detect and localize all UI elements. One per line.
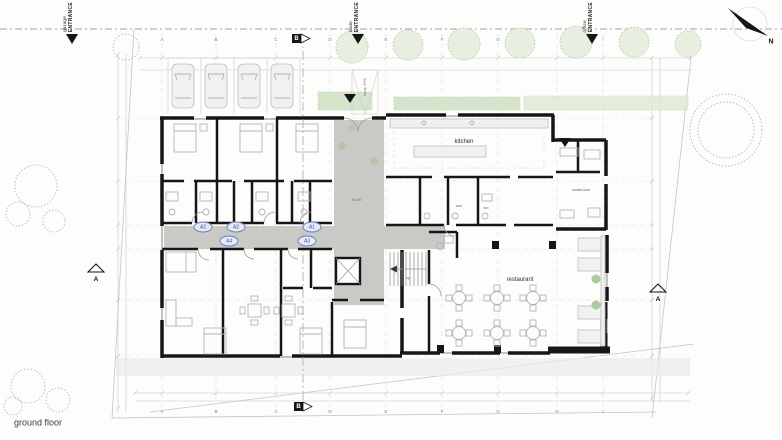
grid-letter: F [441, 38, 444, 43]
north-arrow-icon [728, 7, 768, 41]
unit-badge: A3 [298, 236, 317, 247]
stairs-up-label: up [406, 276, 410, 280]
unit-badge: A2 [227, 222, 246, 233]
hedges [318, 92, 688, 110]
pavement-strip [116, 358, 690, 376]
grid-letter: H [555, 410, 558, 415]
grid-letter: C [274, 38, 277, 43]
room-label-kitchen: kitchen [454, 139, 473, 145]
grid-letter: E [384, 38, 387, 43]
elevator [336, 258, 360, 284]
grid-letter: D [328, 410, 331, 415]
grid-letter: B [214, 410, 217, 415]
page-title: ground floor [14, 419, 62, 428]
room-label-wm: wm [456, 204, 462, 208]
section-letter-b-bottom: B [296, 404, 300, 410]
grid-letter: G [496, 38, 500, 43]
grid-letter: I [602, 410, 603, 415]
grid-letter: F [441, 410, 444, 415]
room-label-wc: wc [484, 206, 489, 210]
room-label-cloakroom: cloakroom [572, 188, 590, 192]
floor-plan-drawing [0, 0, 782, 440]
grid-letter: E [384, 410, 387, 415]
floor-plan-canvas: ground floor N garage ENTRANCE main ENTR… [0, 0, 782, 440]
grid-letter: C [274, 410, 277, 415]
grid-letter: G [496, 410, 500, 415]
section-letter-b-top: B [294, 36, 298, 42]
parking-lot [168, 58, 300, 114]
section-letter-a-left: A [94, 277, 99, 284]
unit-badge: A4 [220, 236, 239, 247]
grid-letter: B [214, 38, 217, 43]
north-label: N [768, 39, 773, 46]
section-letter-a-right: A [656, 297, 661, 304]
entrance-label-garage: garage ENTRANCE [62, 2, 74, 32]
entrance-label-office: office ENTRANCE [582, 2, 594, 32]
room-label-restaurant: restaurant [506, 277, 533, 283]
trees-row [336, 26, 701, 63]
entrance-label-main: main ENTRANCE [348, 2, 360, 32]
grid-letter: D [328, 38, 331, 43]
unit-badge: A2 [194, 222, 213, 233]
staircase [390, 252, 426, 286]
grid-letter: A [160, 410, 163, 415]
ramp-label: ramp 15% [362, 78, 367, 96]
grid-letter: A [160, 38, 163, 43]
grid-letter: I [602, 38, 603, 43]
unit-badge: A1 [303, 222, 322, 233]
level-mark: ±0.00 [351, 198, 361, 202]
